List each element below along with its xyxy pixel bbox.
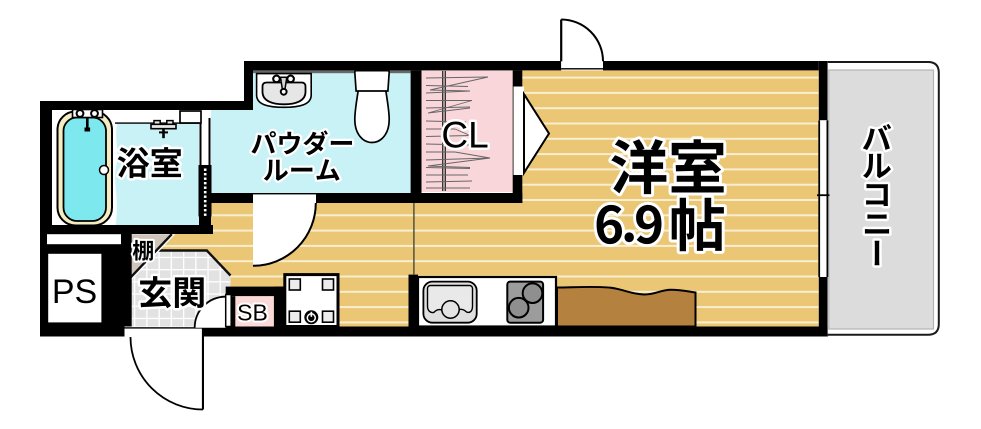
svg-text:PS: PS <box>52 273 97 311</box>
svg-text:CL: CL <box>441 115 488 156</box>
svg-text:SB: SB <box>237 300 268 326</box>
